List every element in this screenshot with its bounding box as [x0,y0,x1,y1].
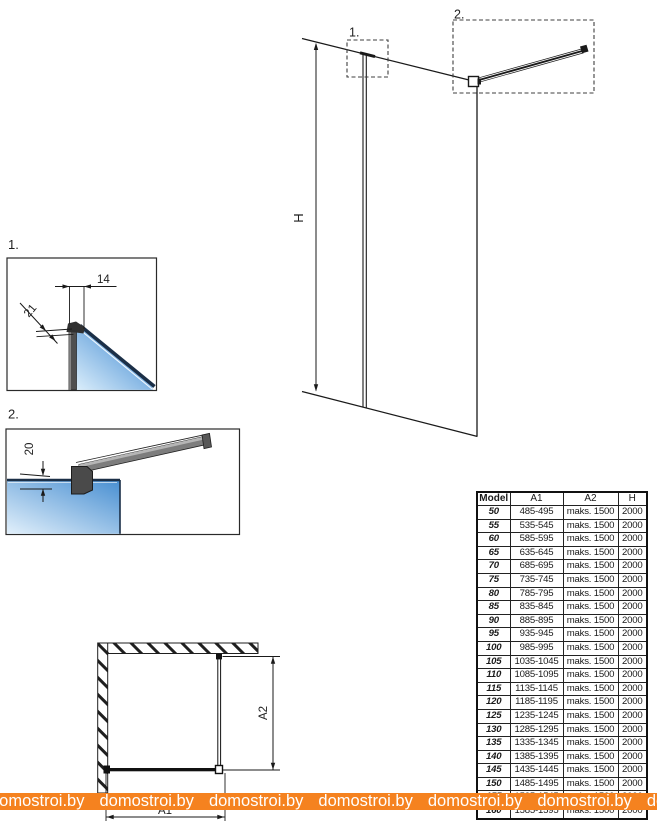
value-cell: 485-495 [510,506,563,520]
watermark-text: domostroi.by [318,793,412,810]
model-cell: 105 [477,655,510,669]
table-row: 1401385-1395maks. 15002000 [477,750,647,764]
value-cell: 2000 [618,682,647,696]
value-cell: 585-595 [510,533,563,547]
value-cell: 1135-1145 [510,682,563,696]
value-cell: maks. 1500 [563,777,618,791]
watermark-text: domostroi.by [99,793,193,810]
header-a2: A2 [563,492,618,506]
value-cell: 2000 [618,737,647,751]
glass-clamp [72,467,93,495]
model-cell: 110 [477,669,510,683]
value-cell: maks. 1500 [563,682,618,696]
arrow-up-icon [314,43,318,50]
wall-profile-cap-line [360,53,375,57]
model-cell: 50 [477,506,510,520]
glass-bracket [469,77,482,87]
value-cell: 685-695 [510,560,563,574]
value-cell: maks. 1500 [563,546,618,560]
value-cell: 785-795 [510,587,563,601]
table-row: 1251235-1245maks. 15002000 [477,709,647,723]
value-cell: 835-845 [510,601,563,615]
value-cell: 2000 [618,669,647,683]
value-cell: 2000 [618,506,647,520]
value-cell: 1035-1045 [510,655,563,669]
model-cell: 140 [477,750,510,764]
value-cell: 885-895 [510,614,563,628]
watermark-text: domostroi.by [209,793,303,810]
table-row: 75735-745maks. 15002000 [477,573,647,587]
value-cell: 2000 [618,519,647,533]
value-cell: 1285-1295 [510,723,563,737]
detail-1-wall-profile: 1. 14 21 [0,233,170,395]
value-cell: 2000 [618,573,647,587]
arrow-down-icon [314,384,318,391]
arrow-down-icon [271,763,275,770]
value-cell: maks. 1500 [563,655,618,669]
value-cell: 935-945 [510,628,563,642]
value-cell: maks. 1500 [563,669,618,683]
value-cell: maks. 1500 [563,560,618,574]
glass-top-edge-line [302,39,471,81]
table-row: 1201185-1195maks. 15002000 [477,696,647,710]
watermark-text: domostroi.by [0,793,84,810]
table-row: 1501485-1495maks. 15002000 [477,777,647,791]
glass-bottom-edge-line [302,392,478,437]
support-bar-plan [216,654,222,766]
table-row: 90885-895maks. 15002000 [477,614,647,628]
table-row: 50485-495maks. 15002000 [477,506,647,520]
table-row: 1351335-1345maks. 15002000 [477,737,647,751]
wall-profile [363,54,366,409]
value-cell: 2000 [618,764,647,778]
main-shower-panel-diagram: H 1. 2. [280,0,620,450]
detail-2-glass [7,480,120,534]
value-cell: 1435-1445 [510,764,563,778]
model-cell: 135 [477,737,510,751]
watermark-text: domostroi.by [537,793,631,810]
model-cell: 65 [477,546,510,560]
technical-drawing-page: H 1. 2. [0,0,657,825]
table-row: 1451435-1445maks. 15002000 [477,764,647,778]
watermark-text: domostroi.by [647,793,657,810]
model-cell: 130 [477,723,510,737]
dim-14-label: 14 [97,274,110,286]
value-cell: maks. 1500 [563,723,618,737]
table-row: 1151135-1145maks. 15002000 [477,682,647,696]
value-cell: 2000 [618,655,647,669]
value-cell: 2000 [618,546,647,560]
top-wall-hatched [98,643,258,654]
value-cell: 1185-1195 [510,696,563,710]
value-cell: 2000 [618,601,647,615]
table-row: 70685-695maks. 15002000 [477,560,647,574]
value-cell: maks. 1500 [563,614,618,628]
watermark-text: domostroi.by [428,793,522,810]
value-cell: maks. 1500 [563,764,618,778]
header-model: Model [477,492,510,506]
table-row: 1301285-1295maks. 15002000 [477,723,647,737]
table-row: 85835-845maks. 15002000 [477,601,647,615]
glass-plan [104,766,223,774]
value-cell: maks. 1500 [563,750,618,764]
dim-a2-label: A2 [258,706,270,720]
table-row: 60585-595maks. 15002000 [477,533,647,547]
value-cell: 2000 [618,777,647,791]
table-row: 95935-945maks. 15002000 [477,628,647,642]
callout-1-label: 1. [349,26,359,40]
value-cell: 985-995 [510,641,563,655]
table-row: 80785-795maks. 15002000 [477,587,647,601]
watermark-bar: domostroi.by domostroi.by domostroi.by d… [0,793,657,810]
value-cell: 535-545 [510,519,563,533]
table-row: 55535-545maks. 15002000 [477,519,647,533]
height-dimension: H [291,43,318,392]
value-cell: 2000 [618,696,647,710]
dim-20-label: 20 [24,443,36,456]
value-cell: 2000 [618,628,647,642]
detail-2-support-bar: 2. 20 [0,405,250,540]
model-cell: 115 [477,682,510,696]
height-dimension-label: H [291,213,306,222]
size-table-body: 50485-495maks. 1500200055535-545maks. 15… [477,506,647,819]
bar-end-cap [202,433,212,448]
model-cell: 80 [477,587,510,601]
callout-2-label: 2. [454,8,464,22]
header-a1: A1 [510,492,563,506]
model-cell: 95 [477,628,510,642]
value-cell: 2000 [618,709,647,723]
header-h: H [618,492,647,506]
dimension-a2: A2 [223,657,281,771]
model-cell: 145 [477,764,510,778]
value-cell: maks. 1500 [563,587,618,601]
table-row: 1101085-1095maks. 15002000 [477,669,647,683]
value-cell: 635-645 [510,546,563,560]
value-cell: 1385-1395 [510,750,563,764]
model-cell: 125 [477,709,510,723]
model-cell: 85 [477,601,510,615]
model-cell: 60 [477,533,510,547]
value-cell: 1085-1095 [510,669,563,683]
value-cell: maks. 1500 [563,737,618,751]
value-cell: maks. 1500 [563,506,618,520]
model-cell: 70 [477,560,510,574]
detail-2-label: 2. [8,407,19,422]
table-row: 65635-645maks. 15002000 [477,546,647,560]
value-cell: 1485-1495 [510,777,563,791]
value-cell: maks. 1500 [563,709,618,723]
value-cell: 2000 [618,560,647,574]
table-row: 100985-995maks. 15002000 [477,641,647,655]
value-cell: 2000 [618,723,647,737]
value-cell: 2000 [618,533,647,547]
table-header-row: Model A1 A2 H [477,492,647,506]
model-cell: 150 [477,777,510,791]
arrow-right-icon [217,815,224,819]
model-cell: 55 [477,519,510,533]
arrow-left-icon [107,815,114,819]
value-cell: maks. 1500 [563,696,618,710]
table-row: 1051035-1045maks. 15002000 [477,655,647,669]
value-cell: 2000 [618,587,647,601]
model-cell: 100 [477,641,510,655]
value-cell: 2000 [618,750,647,764]
support-bar [475,45,588,83]
value-cell: 2000 [618,614,647,628]
value-cell: 1335-1345 [510,737,563,751]
value-cell: 1235-1245 [510,709,563,723]
bar-wall-bracket-plan [216,654,222,660]
glass-end-bracket-plan [216,766,223,774]
arrow-up-icon [271,657,275,664]
value-cell: maks. 1500 [563,641,618,655]
model-cell: 75 [477,573,510,587]
size-table: Model A1 A2 H 50485-495maks. 15002000555… [476,491,648,820]
detail-1-label: 1. [8,237,19,252]
value-cell: maks. 1500 [563,601,618,615]
wall-profile-plan [104,766,111,774]
value-cell: maks. 1500 [563,533,618,547]
value-cell: maks. 1500 [563,519,618,533]
value-cell: maks. 1500 [563,628,618,642]
value-cell: 2000 [618,641,647,655]
model-cell: 120 [477,696,510,710]
value-cell: maks. 1500 [563,573,618,587]
model-cell: 90 [477,614,510,628]
value-cell: 735-745 [510,573,563,587]
